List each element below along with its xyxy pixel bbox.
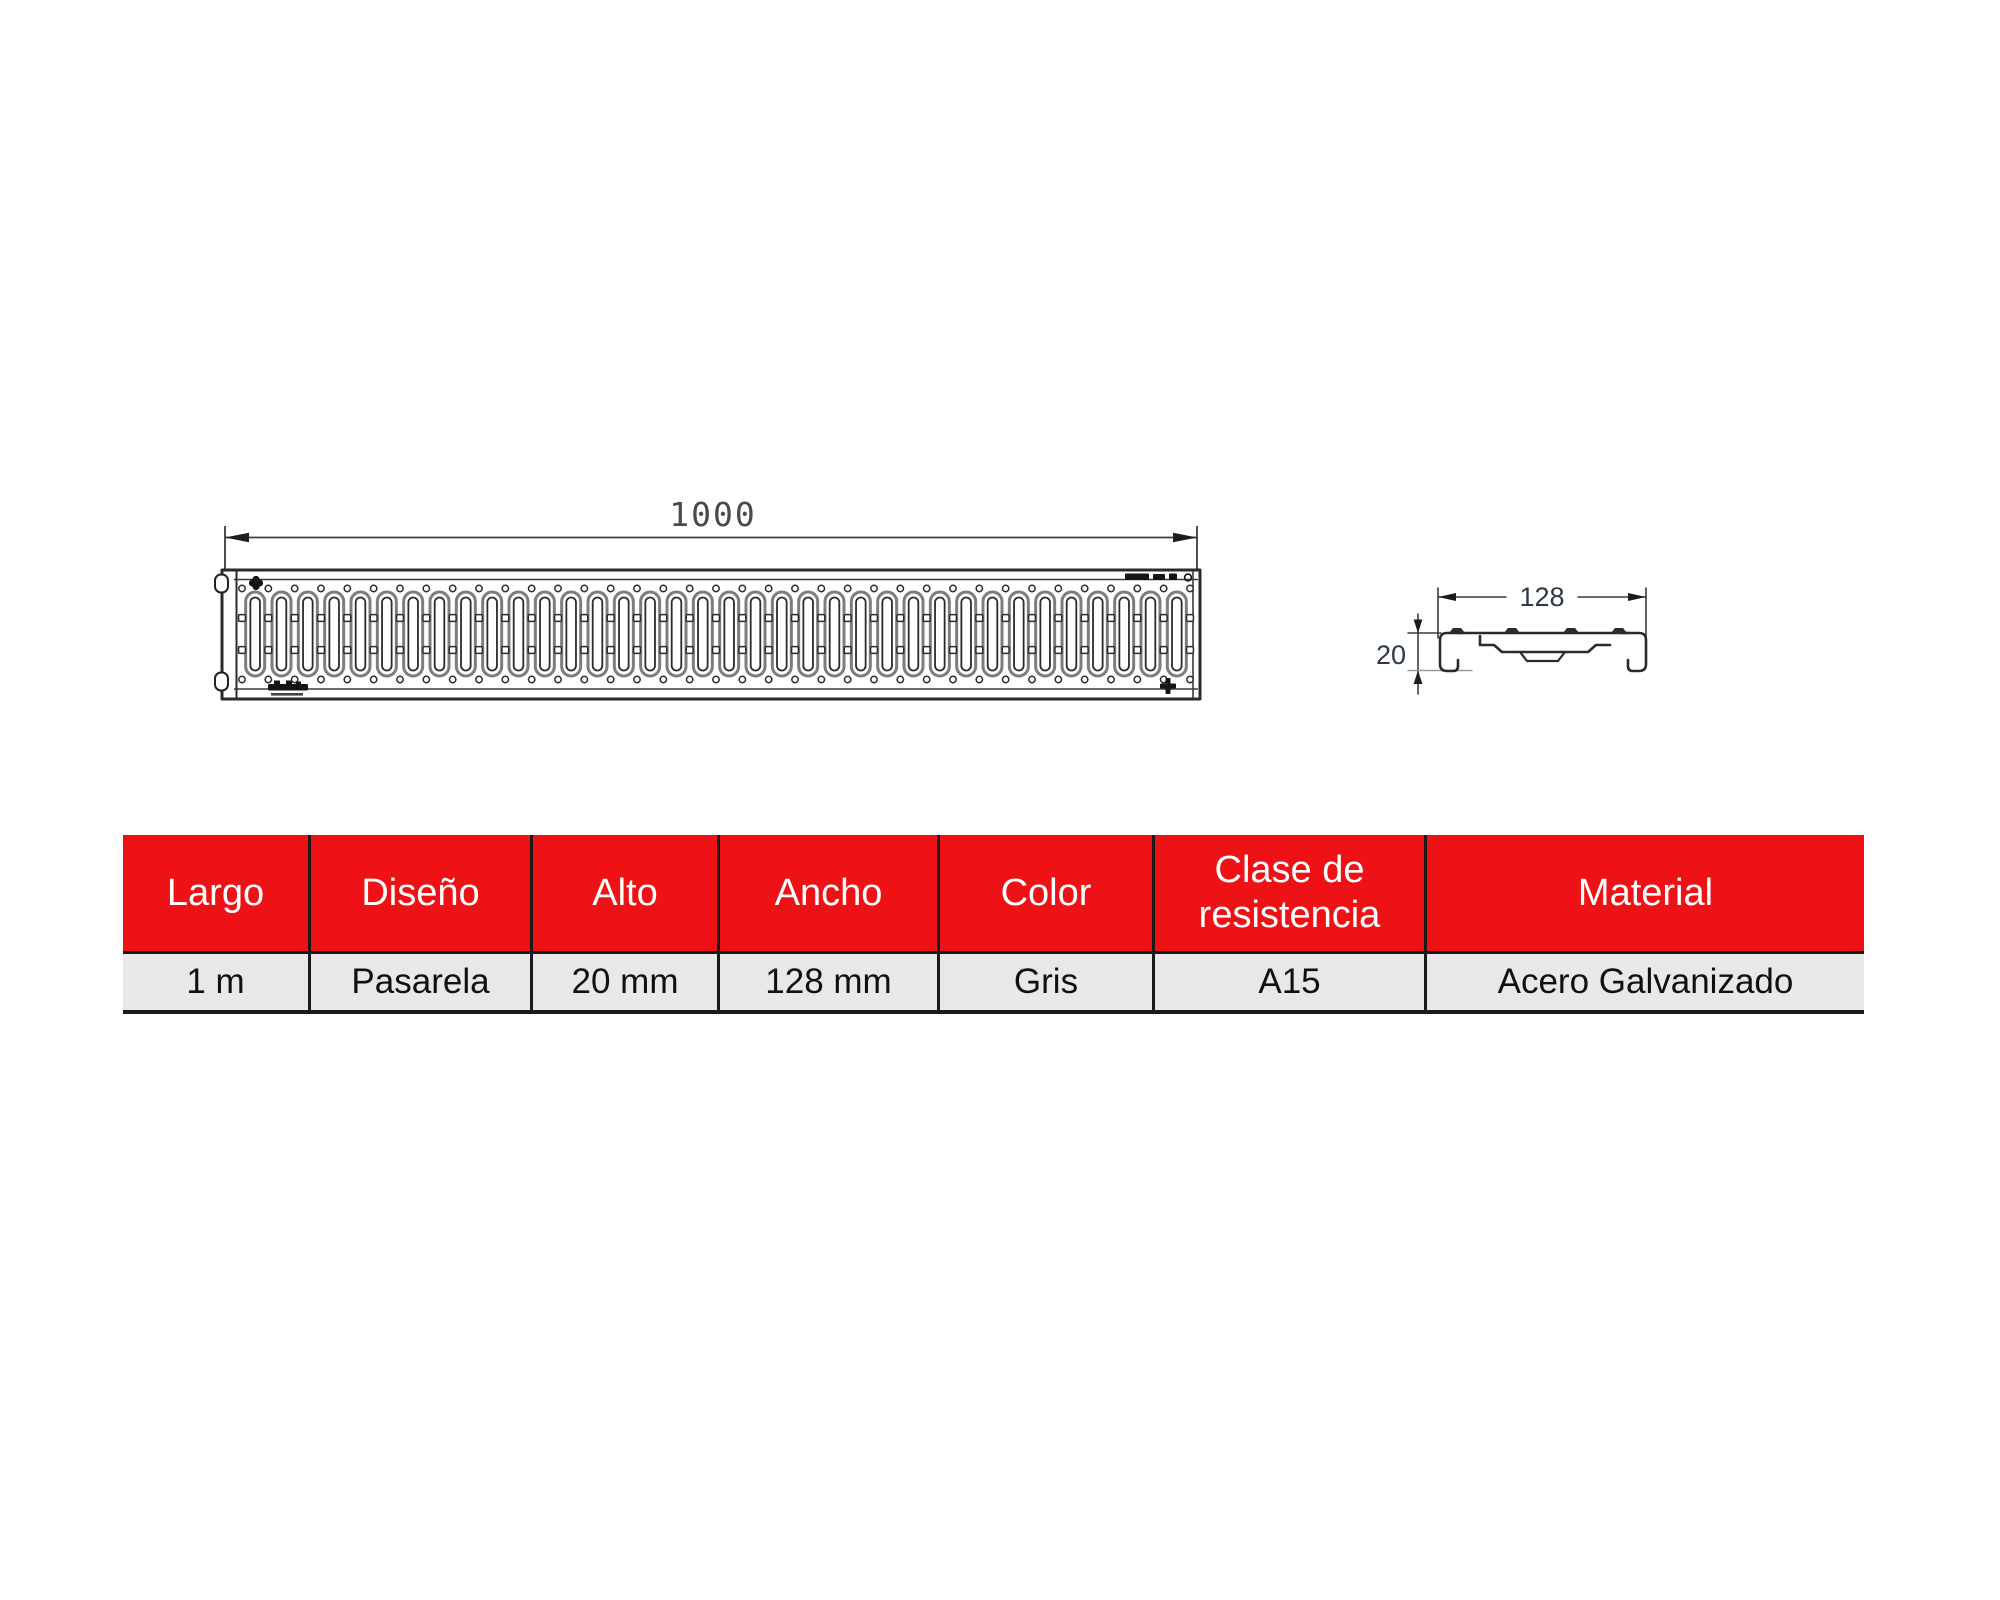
length-dimension: 1000 <box>225 495 1197 572</box>
column-header-alto: Alto <box>530 835 717 951</box>
grate-section-view: 128 20 <box>1376 582 1646 694</box>
dim-arrow-left <box>225 533 249 543</box>
width-dimension-label: 128 <box>1519 582 1564 612</box>
column-header-material: Material <box>1424 835 1864 951</box>
dim-arrow-right <box>1173 533 1197 543</box>
length-dimension-label: 1000 <box>669 495 756 534</box>
spec-table-header: Largo Diseño Alto Ancho Color Clase de r… <box>123 835 1864 954</box>
dim-arrow-left <box>1438 593 1456 601</box>
cell-material: Acero Galvanizado <box>1424 954 1864 1010</box>
column-header-color: Color <box>937 835 1152 951</box>
column-header-clase-de-resistencia: Clase de resistencia <box>1152 835 1424 951</box>
cell-largo: 1 m <box>123 954 308 1010</box>
column-header-diseno: Diseño <box>308 835 530 951</box>
cell-diseno: Pasarela <box>308 954 530 1010</box>
column-header-largo: Largo <box>123 835 308 951</box>
cell-alto: 20 mm <box>530 954 717 1010</box>
section-profile <box>1440 628 1646 671</box>
cell-clase-de-resistencia: A15 <box>1152 954 1424 1010</box>
dim-arrow-top <box>1414 620 1423 634</box>
grate-top-view: 1000 <box>215 495 1200 699</box>
profile-center-rib <box>1520 652 1565 661</box>
dim-arrow-bottom <box>1414 671 1423 685</box>
profile-left-hook <box>1440 633 1462 671</box>
profile-right-hook <box>1622 633 1646 671</box>
spec-table-row: 1 m Pasarela 20 mm 128 mm Gris A15 Acero… <box>123 954 1864 1014</box>
spec-table: Largo Diseño Alto Ancho Color Clase de r… <box>123 835 1864 1014</box>
technical-drawing: 1000 <box>0 0 2000 810</box>
profile-underside <box>1480 636 1610 652</box>
height-dimension-label: 20 <box>1376 640 1406 670</box>
height-dimension: 20 <box>1376 614 1472 694</box>
cell-color: Gris <box>937 954 1152 1010</box>
column-header-ancho: Ancho <box>717 835 937 951</box>
cell-ancho: 128 mm <box>717 954 937 1010</box>
dim-arrow-right <box>1628 593 1646 601</box>
